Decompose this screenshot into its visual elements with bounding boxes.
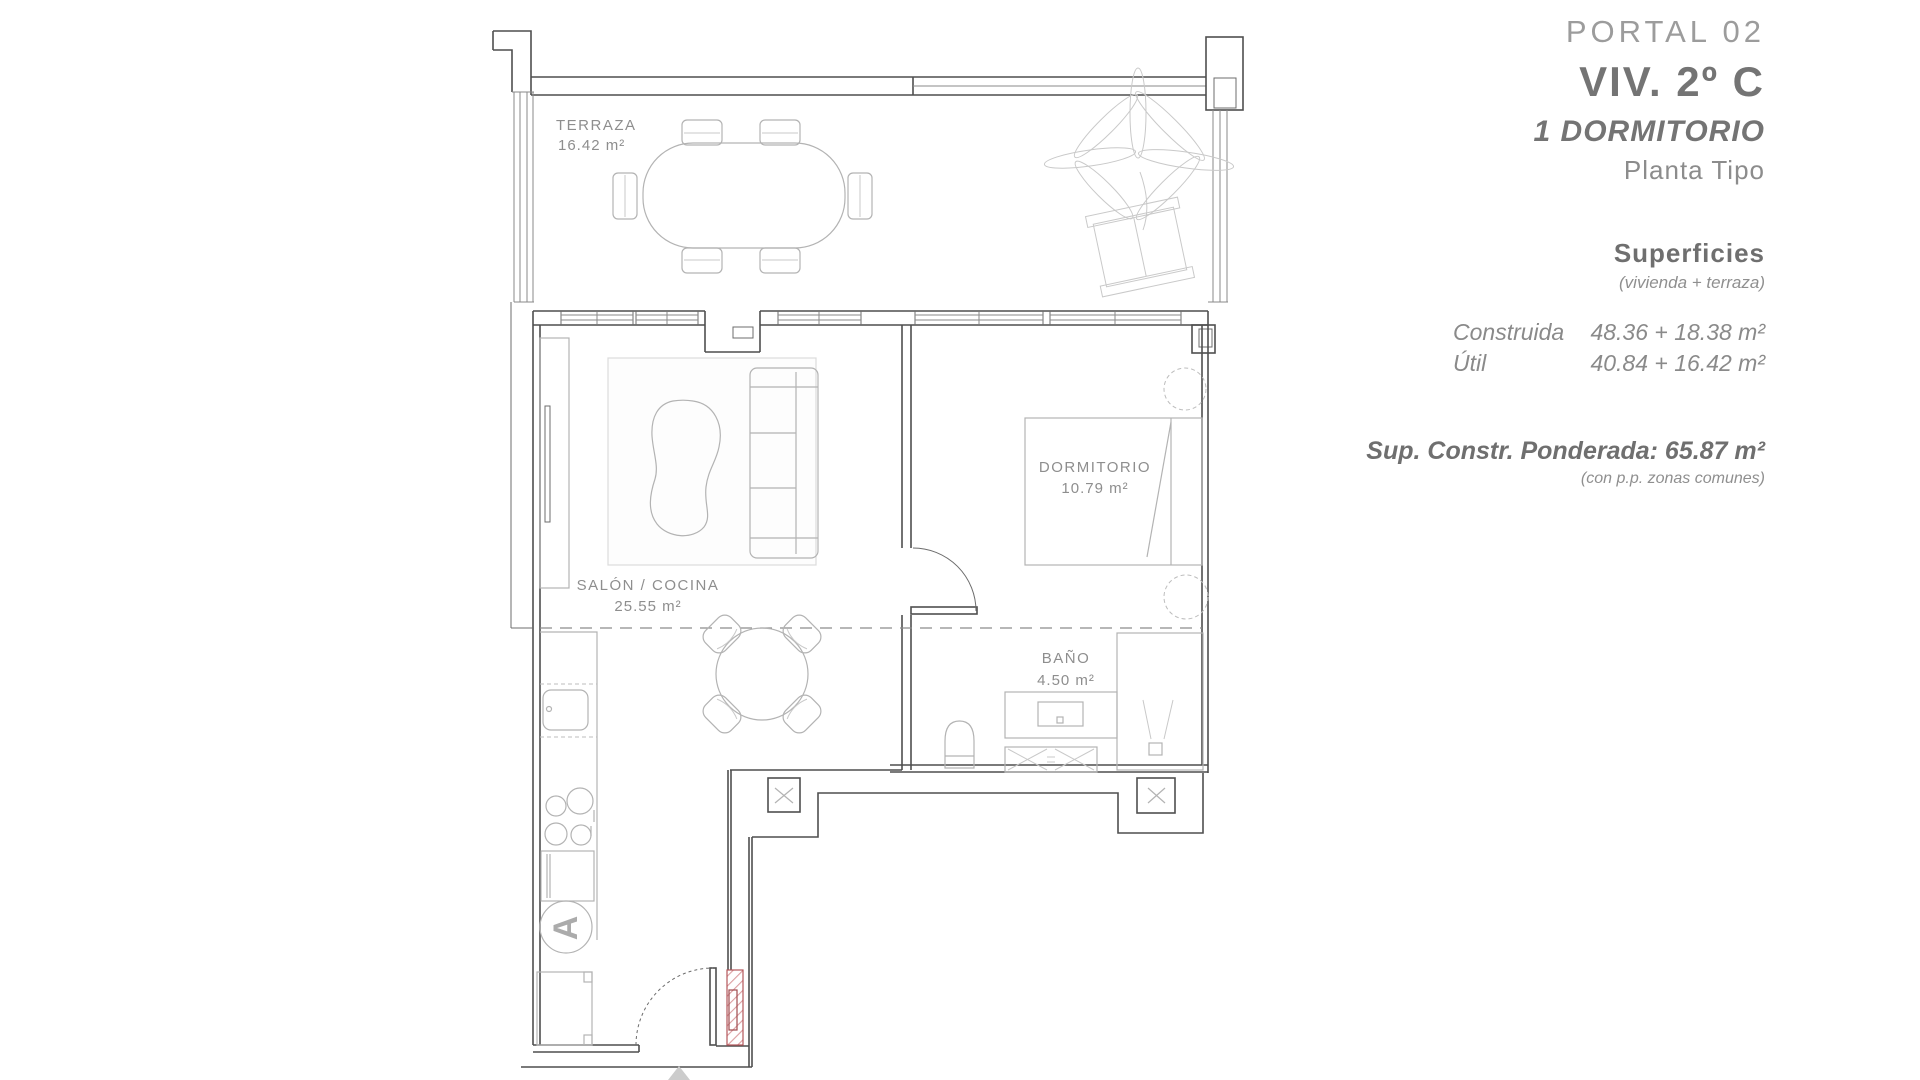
plant-pot	[1086, 197, 1195, 297]
room-area-salon: 25.55 m²	[614, 598, 681, 615]
surfaces-row-construida: Construida 48.36 + 18.38 m²	[1453, 319, 1765, 346]
living-rug	[608, 358, 816, 565]
terrace-walls	[493, 31, 1243, 302]
tv-unit	[540, 338, 569, 588]
room-area-dormitorio: 10.79 m²	[1061, 480, 1128, 497]
service-shaft-left	[768, 778, 800, 812]
bedroom-partition	[902, 325, 911, 548]
room-label-salon: SALÓN / COCINA	[577, 577, 720, 594]
room-area-terraza: 16.42 m²	[558, 137, 625, 154]
room-label-dormitorio: DORMITORIO	[1039, 459, 1151, 476]
floor-type-label: Planta Tipo	[1624, 155, 1765, 186]
window-glazing	[561, 312, 1181, 324]
weighted-surface-note: (con p.p. zonas comunes)	[1581, 470, 1765, 488]
entry-closet	[537, 972, 592, 1045]
room-area-bano: 4.50 m²	[1037, 672, 1095, 689]
surface-label: Útil	[1453, 350, 1486, 377]
cooktop	[545, 788, 594, 845]
surface-value: 48.36 + 18.38 m²	[1590, 319, 1765, 346]
shower	[1117, 633, 1203, 770]
weighted-surface-label: Sup. Constr. Ponderada: 65.87 m²	[1366, 437, 1765, 466]
kitchen-table	[699, 611, 824, 736]
kitchen-counter	[540, 632, 597, 940]
surface-value: 40.84 + 16.42 m²	[1590, 350, 1765, 377]
portal-label: PORTAL 02	[1566, 14, 1765, 50]
oven	[541, 851, 594, 901]
bedroom-count-label: 1 DORMITORIO	[1534, 115, 1765, 149]
service-shaft-right	[1137, 778, 1175, 813]
surfaces-subtitle: (vivienda + terraza)	[1619, 273, 1765, 293]
nightstand-top	[1164, 368, 1206, 410]
room-label-bano: BAÑO	[1042, 650, 1091, 667]
unit-title: VIV. 2º C	[1579, 58, 1765, 106]
bottom-boundary-walls	[521, 765, 1208, 1067]
bathtub-unit	[1005, 747, 1097, 772]
appliance-circle: A	[540, 901, 592, 953]
surfaces-row-util: Útil 40.84 + 16.42 m²	[1453, 350, 1765, 377]
room-label-terraza: TERRAZA	[556, 117, 637, 134]
surfaces-table: Construida 48.36 + 18.38 m² Útil 40.84 +…	[1453, 319, 1765, 377]
terrace-dining-table	[643, 143, 845, 248]
entry-door	[636, 968, 716, 1045]
entrance-arrow	[668, 1066, 690, 1080]
entry-wall-hatch	[727, 970, 743, 1045]
info-panel: PORTAL 02 VIV. 2º C 1 DORMITORIO Planta …	[1366, 14, 1765, 488]
bathroom-partition	[902, 615, 911, 770]
kitchen-sink	[543, 690, 588, 730]
bathroom-vanity	[1005, 692, 1117, 738]
surface-label: Construida	[1453, 319, 1564, 346]
appliance-letter: A	[547, 916, 585, 941]
bedroom-door	[911, 548, 977, 614]
surfaces-title: Superficies	[1614, 238, 1765, 269]
toilet	[945, 721, 974, 768]
